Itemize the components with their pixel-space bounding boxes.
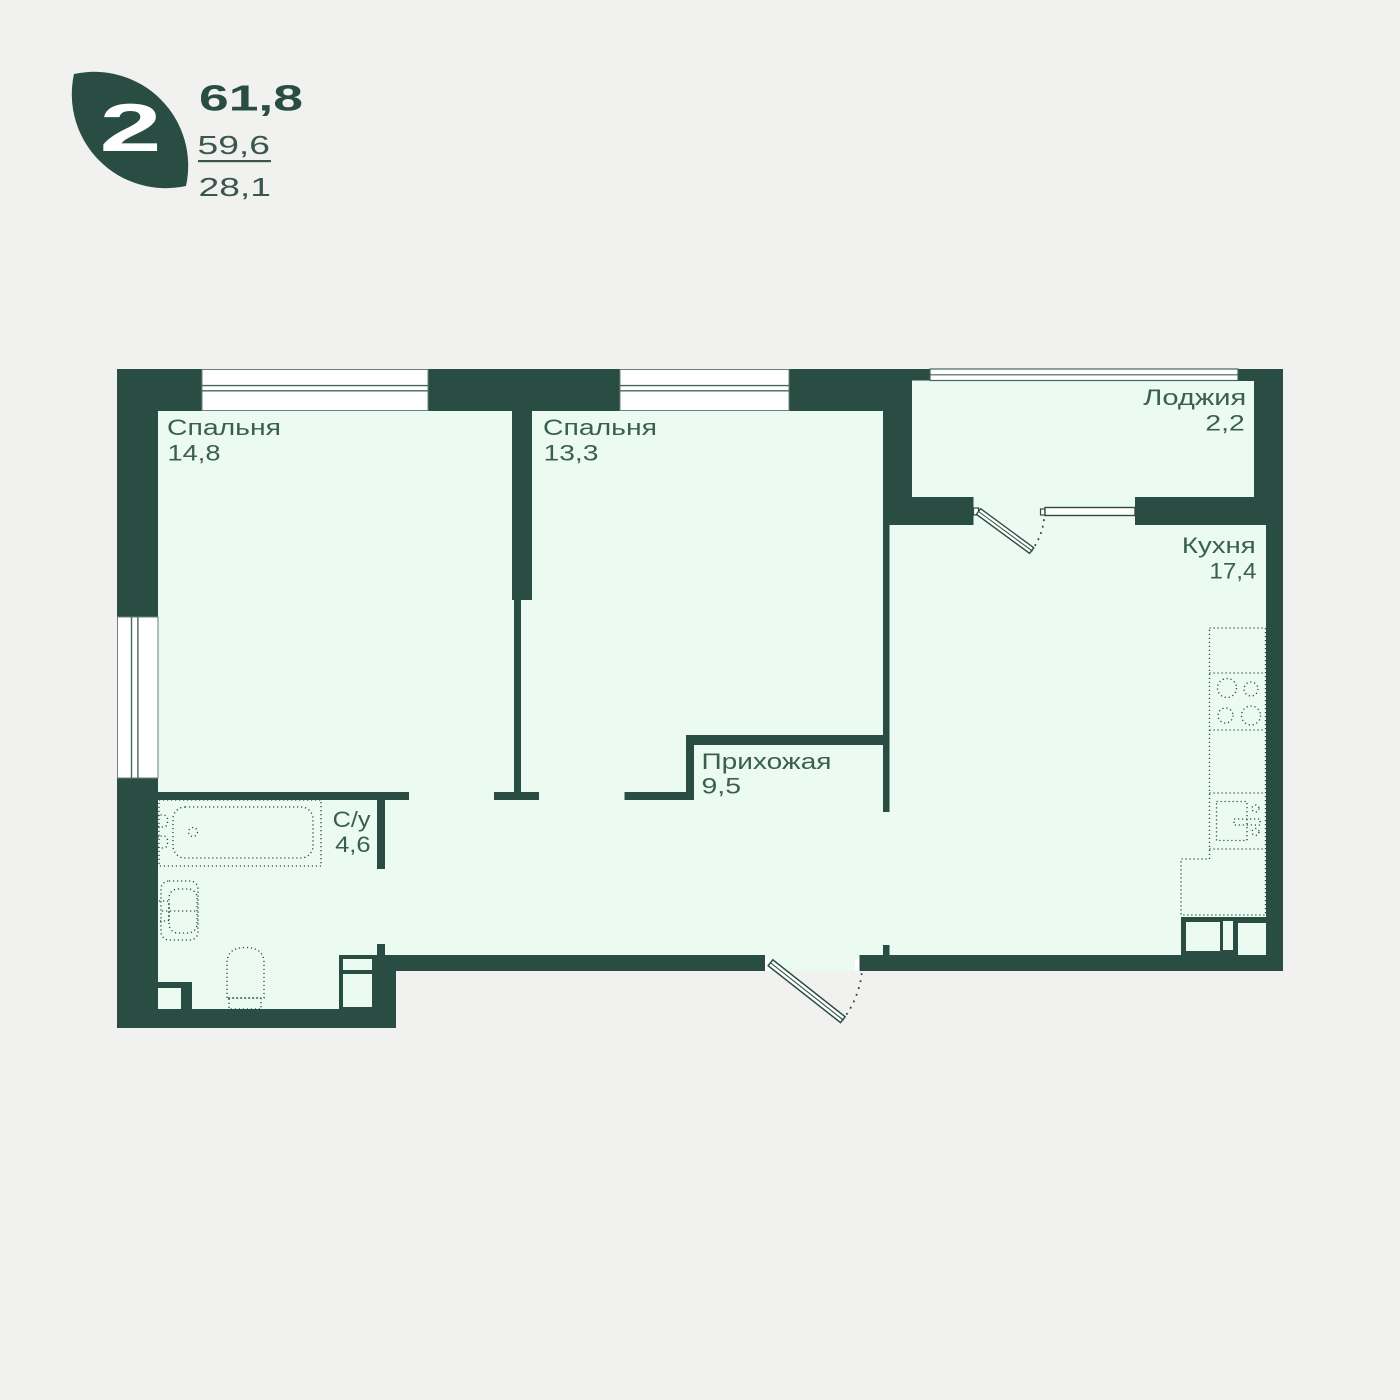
svg-text:59,6: 59,6 [198, 130, 271, 160]
svg-text:Лоджия: Лоджия [1143, 385, 1246, 410]
svg-text:13,3: 13,3 [544, 441, 599, 466]
svg-text:2,2: 2,2 [1205, 410, 1244, 435]
svg-text:Кухня: Кухня [1182, 533, 1256, 558]
svg-text:Спальня: Спальня [543, 415, 657, 440]
svg-text:28,1: 28,1 [199, 172, 272, 202]
svg-text:Спальня: Спальня [167, 415, 281, 440]
svg-text:17,4: 17,4 [1209, 559, 1256, 584]
svg-text:2: 2 [100, 90, 162, 166]
svg-text:4,6: 4,6 [335, 832, 371, 857]
svg-text:14,8: 14,8 [168, 441, 221, 466]
svg-text:Прихожая: Прихожая [702, 749, 832, 774]
svg-text:61,8: 61,8 [199, 78, 303, 119]
svg-text:С/у: С/у [333, 807, 372, 832]
svg-text:9,5: 9,5 [702, 774, 742, 799]
